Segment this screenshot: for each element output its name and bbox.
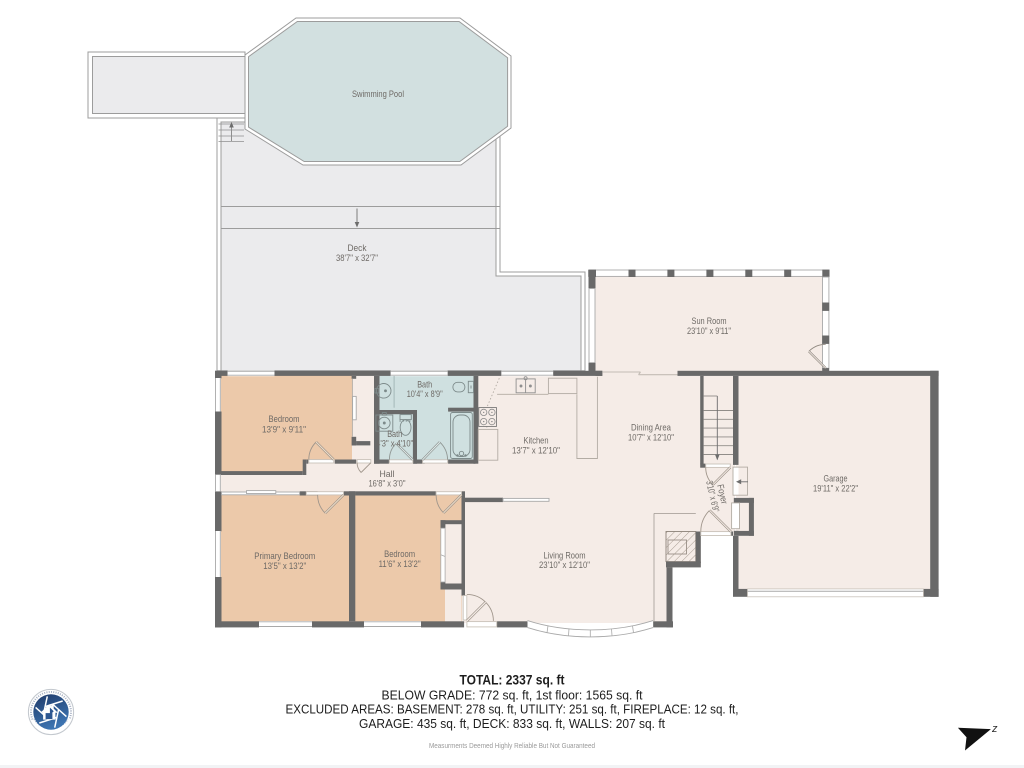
svg-text:Measurments Deemed Highly Reli: Measurments Deemed Highly Reliable But N… <box>429 741 595 750</box>
svg-text:Living Room: Living Room <box>544 551 586 561</box>
svg-text:10'7" x 12'10": 10'7" x 12'10" <box>628 433 674 443</box>
svg-text:Bedroom: Bedroom <box>269 414 300 424</box>
svg-text:Garage: Garage <box>824 474 848 484</box>
svg-text:4'3" x 4'10": 4'3" x 4'10" <box>376 438 413 448</box>
svg-text:23'10" x 12'10": 23'10" x 12'10" <box>539 560 590 570</box>
svg-text:16'8" x 3'0": 16'8" x 3'0" <box>369 479 406 489</box>
svg-text:Dining Area: Dining Area <box>631 423 672 433</box>
svg-text:13'5" x 13'2": 13'5" x 13'2" <box>263 561 306 571</box>
svg-text:z: z <box>991 723 998 735</box>
svg-text:13'7" x 12'10": 13'7" x 12'10" <box>512 446 560 456</box>
svg-text:19'11" x 22'2": 19'11" x 22'2" <box>813 484 858 494</box>
svg-text:23'10" x 9'11": 23'10" x 9'11" <box>687 326 731 336</box>
svg-text:Hall: Hall <box>380 469 395 479</box>
svg-text:Kitchen: Kitchen <box>524 436 549 446</box>
svg-text:Bath: Bath <box>417 379 432 389</box>
svg-text:Swimming Pool: Swimming Pool <box>352 89 404 99</box>
svg-text:11'6" x 13'2": 11'6" x 13'2" <box>379 559 421 569</box>
svg-text:GARAGE: 435 sq. ft, DECK: 833: GARAGE: 435 sq. ft, DECK: 833 sq. ft, WA… <box>359 716 665 731</box>
svg-text:Bath: Bath <box>387 429 402 439</box>
svg-text:10'4" x 8'9": 10'4" x 8'9" <box>407 389 443 399</box>
svg-text:Primary Bedroom: Primary Bedroom <box>254 551 315 561</box>
svg-text:BELOW GRADE: 772 sq. ft, 1st f: BELOW GRADE: 772 sq. ft, 1st floor: 1565… <box>382 687 643 702</box>
svg-text:Deck: Deck <box>348 243 367 253</box>
svg-text:13'9" x 9'11": 13'9" x 9'11" <box>262 425 306 435</box>
svg-text:Sun Room: Sun Room <box>692 316 727 326</box>
svg-text:TOTAL: 2337 sq. ft: TOTAL: 2337 sq. ft <box>460 673 565 688</box>
svg-text:38'7" x 32'7": 38'7" x 32'7" <box>336 253 378 263</box>
svg-text:Bedroom: Bedroom <box>384 549 415 559</box>
svg-text:EXCLUDED AREAS: BASEMENT: 278: EXCLUDED AREAS: BASEMENT: 278 sq. ft, UT… <box>286 702 739 717</box>
